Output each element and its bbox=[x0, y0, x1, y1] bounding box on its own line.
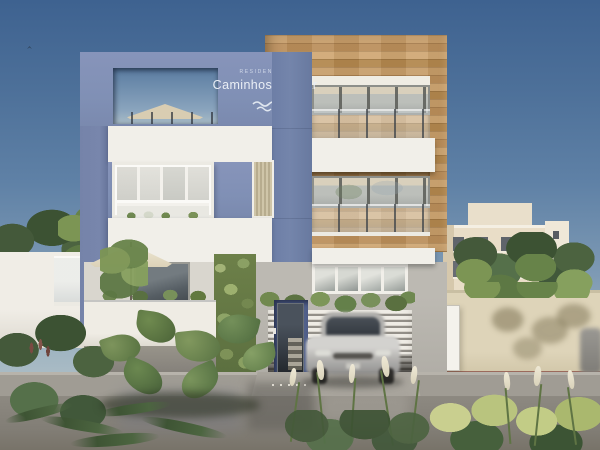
car-windshield bbox=[326, 317, 380, 335]
stem bbox=[534, 384, 542, 446]
white-band-upper bbox=[108, 126, 272, 162]
window-pane bbox=[188, 167, 209, 200]
plume-grass-center bbox=[268, 364, 444, 450]
stem bbox=[505, 388, 512, 444]
leaf bbox=[134, 309, 178, 344]
entrance-recess bbox=[274, 300, 308, 372]
car-headlight bbox=[315, 350, 331, 356]
window-pane bbox=[163, 167, 188, 200]
plume bbox=[289, 368, 297, 387]
leaf bbox=[174, 328, 221, 364]
wall-vine bbox=[443, 282, 600, 298]
floor-slab bbox=[308, 138, 435, 172]
balcony-2 bbox=[312, 172, 430, 232]
leaf bbox=[215, 310, 261, 349]
entrance-canopy-right bbox=[312, 248, 435, 264]
roof-opening bbox=[113, 68, 218, 124]
balcony-ceiling bbox=[312, 76, 430, 85]
glass-reflection bbox=[320, 180, 416, 200]
balcony-1 bbox=[312, 76, 430, 138]
frond bbox=[96, 399, 173, 419]
facade-seam bbox=[272, 128, 312, 129]
car-grille bbox=[333, 353, 373, 359]
facade-seam bbox=[272, 218, 312, 219]
grass-base bbox=[268, 410, 444, 450]
plume-grass-right bbox=[490, 372, 600, 450]
balcony-railing bbox=[312, 204, 430, 236]
architectural-render: RESIDENCIAL Caminhos do Mar bbox=[0, 0, 600, 450]
stem bbox=[567, 387, 577, 445]
window-pane bbox=[117, 167, 140, 200]
frond bbox=[70, 430, 161, 450]
flower-spikes bbox=[24, 336, 54, 370]
window-band bbox=[112, 162, 214, 218]
ferns-bottom-left bbox=[0, 390, 240, 450]
window-pane bbox=[140, 167, 163, 200]
parked-car-blurred bbox=[580, 328, 600, 374]
car-headlight bbox=[375, 350, 391, 356]
roof-railing-posts bbox=[113, 112, 218, 124]
frosted-glass-panel bbox=[252, 160, 274, 218]
